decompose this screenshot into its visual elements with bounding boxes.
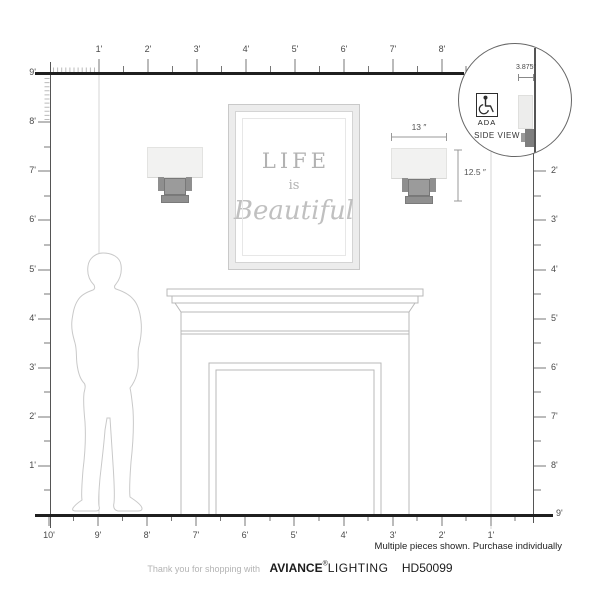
framed-artwork: LIFE is Beautiful [228, 104, 360, 270]
top-ruler-label: 3' [187, 44, 207, 54]
top-ruler-label: 8' [432, 44, 452, 54]
inch-ticks [47, 70, 97, 120]
side-view-shade [518, 95, 533, 129]
brand-name: AVIANCE [269, 561, 322, 575]
sconce-backplate [408, 179, 430, 196]
right-ruler-label: 7' [551, 411, 575, 421]
depth-dimension-tick [533, 74, 534, 81]
right-ruler-label: 3' [551, 214, 575, 224]
depth-dimension-label: 3.875″ [501, 64, 551, 71]
width-dimension-label: 13 ″ [399, 122, 439, 132]
left-ruler-label: 3' [14, 362, 36, 372]
top-ruler-label: 5' [285, 44, 305, 54]
artwork-matte: LIFE is Beautiful [235, 111, 353, 263]
sconce-backplate [164, 178, 186, 195]
footer: Thank you for shopping with AVIANCE®LIGH… [0, 559, 600, 577]
footer-thankyou-text: Thank you for shopping with [147, 564, 260, 574]
top-ruler-label: 2' [138, 44, 158, 54]
bottom-ruler-label: 8' [134, 530, 160, 540]
top-ruler-label: 4' [236, 44, 256, 54]
left-ruler-label: 6' [14, 214, 36, 224]
sconce-base [405, 196, 433, 204]
fireplace [167, 289, 423, 514]
sconce-base [161, 195, 189, 203]
top-ruler-label: 1' [89, 44, 109, 54]
human-scale-figure [72, 253, 142, 511]
bottom-ruler-label: 5' [281, 530, 307, 540]
right-ruler-label: 6' [551, 362, 575, 372]
side-view-inset: 3.875″ ADA SIDE VIEW [458, 43, 572, 157]
sconce-shade [147, 147, 203, 178]
floor-height-label: 9' [556, 508, 580, 518]
right-ruler-label: 2' [551, 165, 575, 175]
height-dimension-label: 12.5 ″ [464, 167, 486, 177]
top-ruler-label: 6' [334, 44, 354, 54]
sconce-arm [430, 178, 436, 192]
bottom-ruler-label: 3' [380, 530, 406, 540]
wall-sconce-right [391, 148, 447, 205]
bottom-ruler-label: 7' [183, 530, 209, 540]
artwork-inner-border [242, 118, 346, 256]
sconce-arm [186, 177, 192, 191]
right-ruler-label: 8' [551, 460, 575, 470]
brand-name-2: LIGHTING [328, 561, 389, 575]
top-ruler-label: 7' [383, 44, 403, 54]
ada-wheelchair-icon [477, 94, 496, 115]
left-ruler-label: 2' [14, 411, 36, 421]
right-ruler-label: 4' [551, 264, 575, 274]
bottom-ruler-label: 10' [36, 530, 62, 540]
left-ruler-label: 5' [14, 264, 36, 274]
bottom-ruler-label: 4' [331, 530, 357, 540]
sconce-shade [391, 148, 447, 179]
purchase-notice: Multiple pieces shown. Purchase individu… [375, 541, 562, 552]
model-number: HD50099 [402, 561, 453, 575]
left-ruler-label: 1' [14, 460, 36, 470]
bottom-ruler-label: 6' [232, 530, 258, 540]
left-ruler-label: 4' [14, 313, 36, 323]
left-ruler-label: 7' [14, 165, 36, 175]
left-ruler-label: 8' [14, 116, 36, 126]
right-ruler-label: 5' [551, 313, 575, 323]
ada-compliance-badge [476, 93, 498, 117]
wall-sconce-left [147, 147, 203, 204]
bottom-ruler-label: 1' [478, 530, 504, 540]
ada-label: ADA [472, 118, 502, 127]
ceiling-height-label: 9' [14, 67, 36, 77]
depth-dimension-line [518, 77, 534, 78]
bottom-ruler-label: 9' [85, 530, 111, 540]
depth-dimension-tick [518, 74, 519, 81]
dimension-diagram: 1' 2' 3' 4' 5' 6' 7' 8' 9' 8' 7' 6' 5' 4… [0, 0, 600, 600]
side-view-label: SIDE VIEW [464, 131, 530, 140]
bottom-ruler-label: 2' [429, 530, 455, 540]
